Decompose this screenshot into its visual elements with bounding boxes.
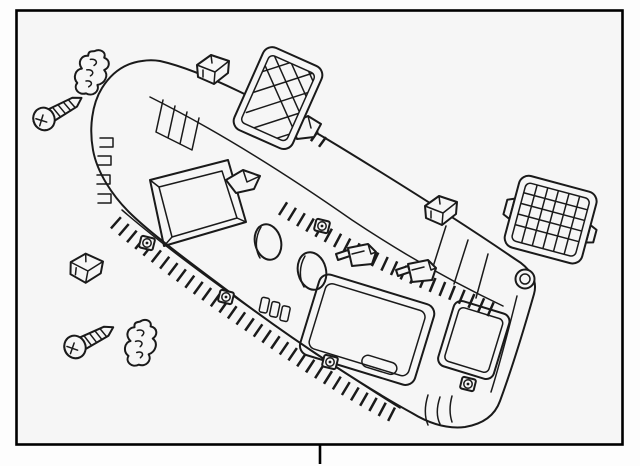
panel-screw-boss-2 — [218, 289, 234, 304]
panel-screw-boss-1 — [139, 235, 155, 250]
panel-eyelet — [516, 270, 535, 289]
panel-screw-boss-5 — [460, 376, 476, 391]
parts-diagram — [0, 0, 640, 466]
panel-screw-boss-3 — [314, 218, 330, 233]
panel-screw-boss-4 — [322, 354, 338, 369]
